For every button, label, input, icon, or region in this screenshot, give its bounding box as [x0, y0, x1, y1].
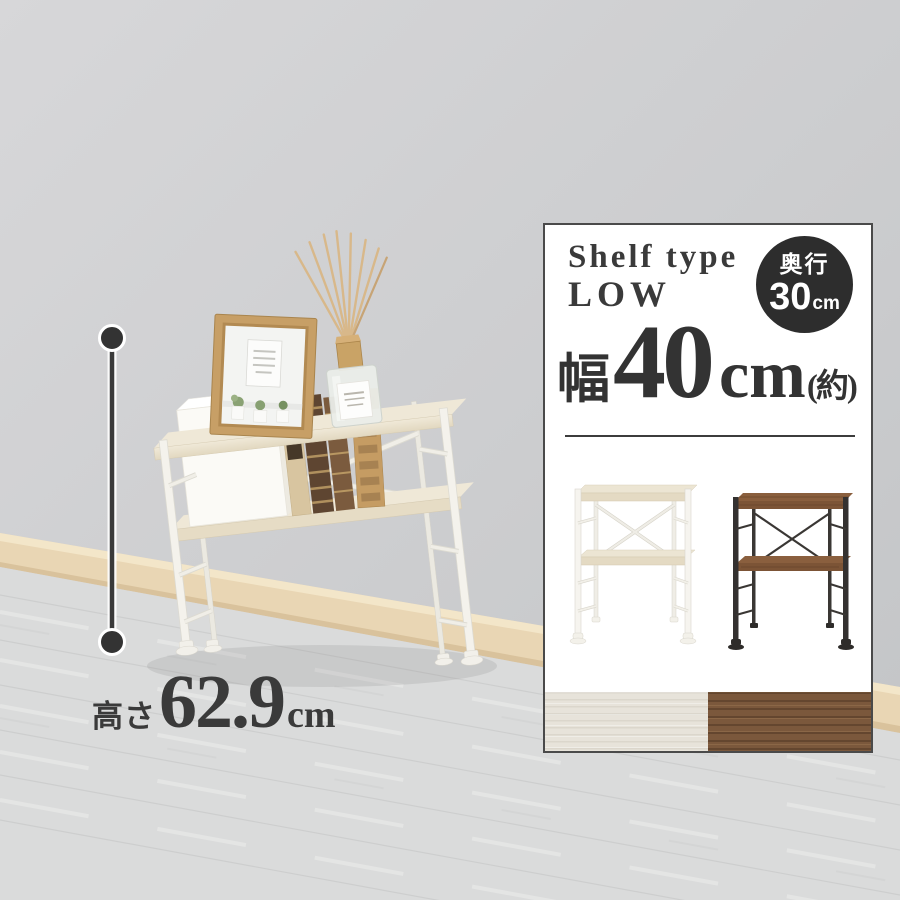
- product-info-panel: Shelf type LOW 奥行 30 cm 幅 40 cm (約): [543, 223, 873, 753]
- depth-badge-value: 30: [769, 279, 811, 315]
- whitewash-wood-swatch: [545, 692, 708, 751]
- depth-badge-unit: cm: [812, 293, 839, 315]
- width-approx-note: (約): [807, 359, 856, 407]
- wood-swatches: [545, 692, 871, 751]
- black-shelf-variant-image: [725, 481, 857, 657]
- width-value: 40: [613, 317, 711, 407]
- panel-divider: [565, 435, 855, 437]
- depth-badge-label: 奥行: [780, 253, 830, 276]
- width-dimension-label: 幅 40 cm (約): [557, 317, 856, 414]
- height-value: 62.9: [159, 668, 284, 736]
- white-shelf-variant-image: [565, 471, 705, 655]
- product-image: 高さ 62.9 cm Shelf type LOW 奥行 30 cm 幅 40 …: [0, 0, 900, 900]
- picture-frame: [210, 314, 317, 438]
- walnut-wood-swatch: [708, 692, 871, 751]
- width-prefix: 幅: [557, 337, 610, 413]
- width-unit: cm: [719, 335, 806, 414]
- shelf-type-line1: Shelf type: [568, 239, 738, 275]
- height-prefix: 高さ: [92, 691, 156, 736]
- height-dimension-label: 高さ 62.9 cm: [92, 668, 336, 737]
- height-unit: cm: [287, 693, 336, 737]
- color-variant-images: [563, 463, 857, 693]
